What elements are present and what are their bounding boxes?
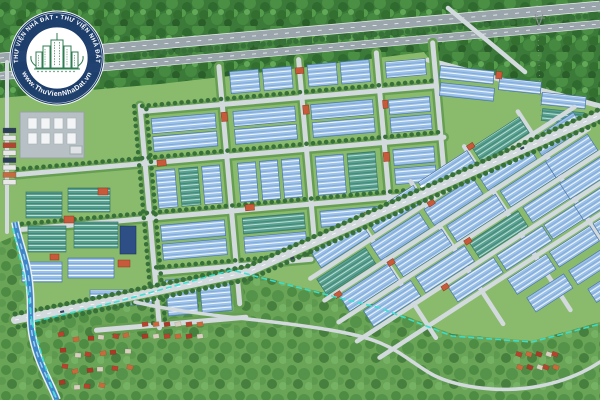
house — [175, 334, 182, 339]
truck — [3, 172, 16, 177]
truck — [3, 165, 16, 170]
warehouse — [383, 100, 389, 108]
emblem-dot — [57, 71, 58, 72]
house — [175, 322, 182, 327]
truck — [3, 158, 16, 163]
emblem-dot — [45, 71, 46, 72]
emblem-dot — [49, 71, 50, 72]
warehouse — [118, 260, 130, 267]
warehouse — [281, 158, 302, 198]
truck — [3, 128, 16, 133]
watermark-logo: THƯ VIỆN NHÀ ĐẤT • THƯ VIỆN NHÀ ĐẤT www.… — [10, 11, 104, 105]
house — [142, 334, 149, 339]
house — [84, 384, 90, 389]
transformer-unit — [28, 133, 37, 144]
warehouse — [307, 62, 338, 86]
aerial-scene: THƯ VIỆN NHÀ ĐẤT • THƯ VIỆN NHÀ ĐẤT www.… — [0, 0, 600, 400]
transformer-unit — [41, 133, 50, 144]
house — [153, 322, 160, 327]
house — [164, 334, 171, 339]
house — [62, 364, 69, 369]
house — [110, 350, 116, 355]
house — [112, 366, 119, 371]
house — [60, 348, 66, 353]
house — [85, 351, 92, 357]
substation — [20, 112, 84, 158]
warehouse — [156, 169, 178, 209]
warehouse — [28, 226, 66, 252]
warehouse — [157, 160, 166, 167]
transformer-unit — [54, 133, 63, 144]
house — [186, 322, 193, 327]
emblem-dot — [41, 71, 42, 72]
warehouse — [179, 167, 201, 207]
house — [197, 334, 204, 339]
truck — [3, 135, 16, 140]
warehouse — [245, 204, 254, 211]
emblem-dot — [65, 71, 66, 72]
house — [153, 334, 160, 339]
house — [87, 368, 94, 373]
transformer-unit — [67, 133, 76, 144]
warehouse — [390, 114, 432, 133]
warehouse — [262, 66, 293, 90]
truck — [3, 143, 16, 148]
house — [186, 334, 193, 339]
warehouse — [26, 192, 62, 218]
warehouse — [229, 69, 260, 93]
transformer-unit — [54, 118, 63, 129]
transformer-unit — [41, 118, 50, 129]
house — [88, 336, 94, 341]
warehouse — [202, 165, 223, 204]
emblem-dot — [73, 71, 74, 72]
house — [125, 349, 131, 354]
warehouse — [259, 160, 280, 200]
truck — [3, 180, 16, 185]
warehouse — [340, 59, 371, 83]
masterplan-render: THƯ VIỆN NHÀ ĐẤT • THƯ VIỆN NHÀ ĐẤT www.… — [0, 0, 600, 400]
transformer-unit — [28, 118, 37, 129]
house — [197, 322, 204, 327]
warehouse — [295, 67, 303, 74]
house — [74, 385, 80, 390]
warehouse — [496, 71, 503, 79]
emblem-dot — [37, 71, 38, 72]
house — [73, 337, 80, 342]
warehouse — [303, 105, 310, 114]
house — [164, 322, 171, 327]
house — [97, 367, 103, 372]
house — [75, 353, 81, 358]
warehouse — [98, 188, 108, 195]
warehouse — [393, 146, 435, 166]
warehouse — [315, 154, 346, 195]
warehouse — [237, 162, 258, 202]
warehouse — [347, 151, 378, 192]
warehouse — [120, 226, 136, 254]
emblem-dot — [53, 71, 54, 72]
house — [98, 335, 104, 340]
warehouse — [388, 96, 430, 115]
warehouse — [50, 254, 59, 260]
warehouse — [383, 152, 390, 161]
transformer-unit — [67, 118, 76, 129]
emblem-dot — [69, 71, 70, 72]
warehouse — [74, 222, 118, 248]
warehouse — [64, 216, 74, 223]
truck — [3, 150, 16, 155]
house — [123, 333, 130, 338]
warehouse — [385, 59, 426, 78]
emblem-dot — [61, 71, 62, 72]
house — [142, 322, 149, 327]
warehouse — [221, 112, 228, 121]
house — [59, 380, 66, 385]
warehouse — [68, 258, 114, 278]
